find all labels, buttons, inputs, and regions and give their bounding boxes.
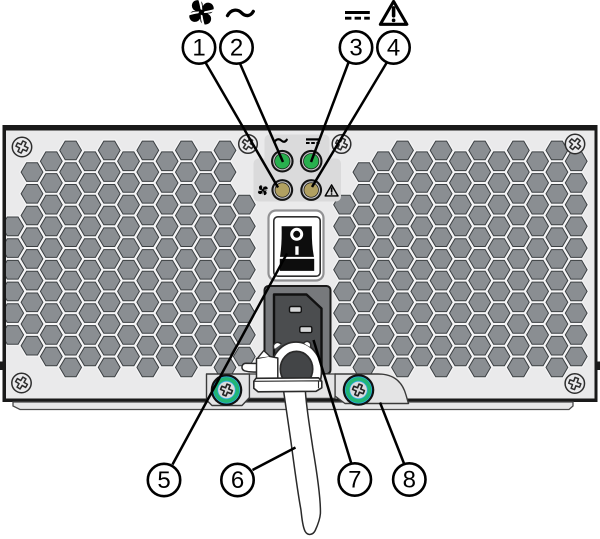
- svg-text:6: 6: [231, 467, 244, 494]
- svg-text:8: 8: [403, 467, 416, 494]
- svg-text:5: 5: [157, 467, 170, 494]
- svg-text:3: 3: [349, 35, 362, 62]
- svg-text:7: 7: [348, 467, 361, 494]
- svg-text:2: 2: [230, 35, 243, 62]
- svg-text:1: 1: [192, 35, 205, 62]
- svg-text:4: 4: [387, 35, 400, 62]
